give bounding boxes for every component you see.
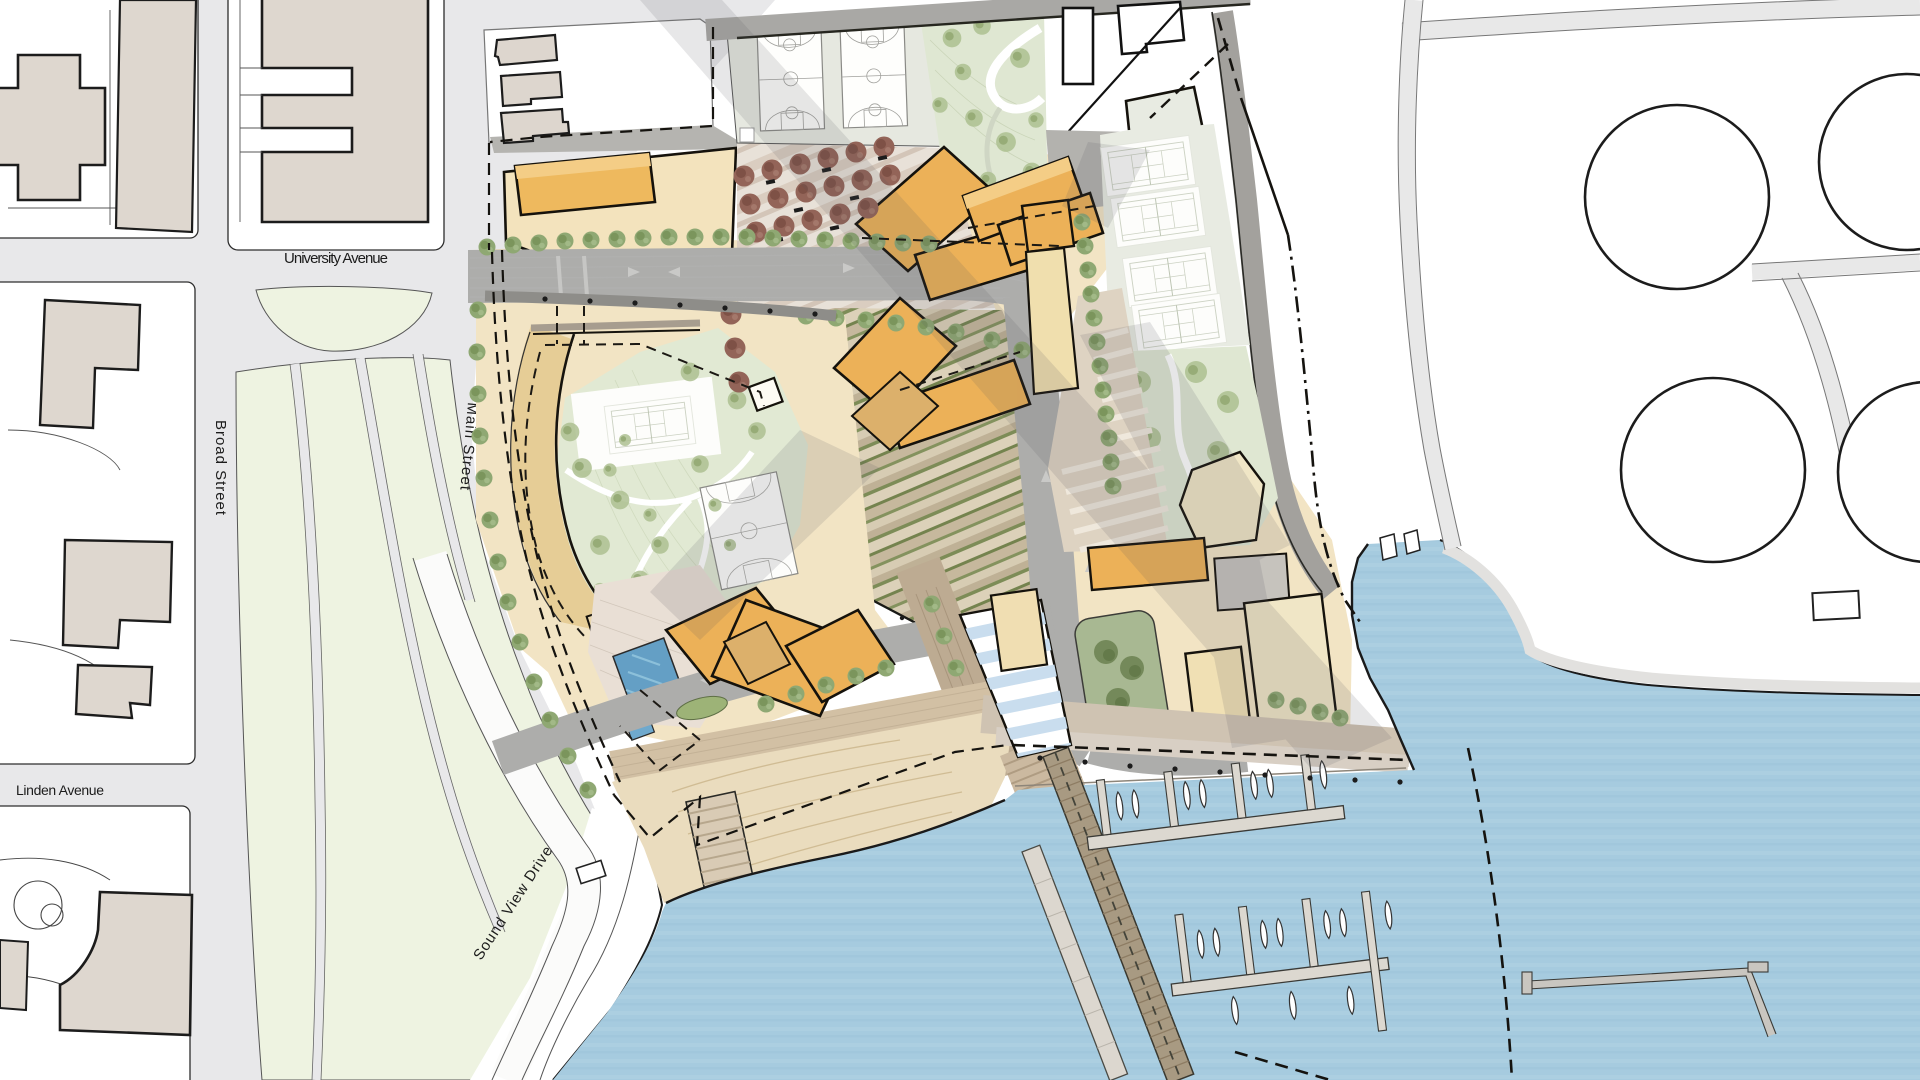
svg-text:Broad Street: Broad Street — [212, 420, 229, 516]
svg-text:Linden Avenue: Linden Avenue — [16, 782, 104, 798]
svg-text:University Avenue: University Avenue — [284, 250, 388, 267]
